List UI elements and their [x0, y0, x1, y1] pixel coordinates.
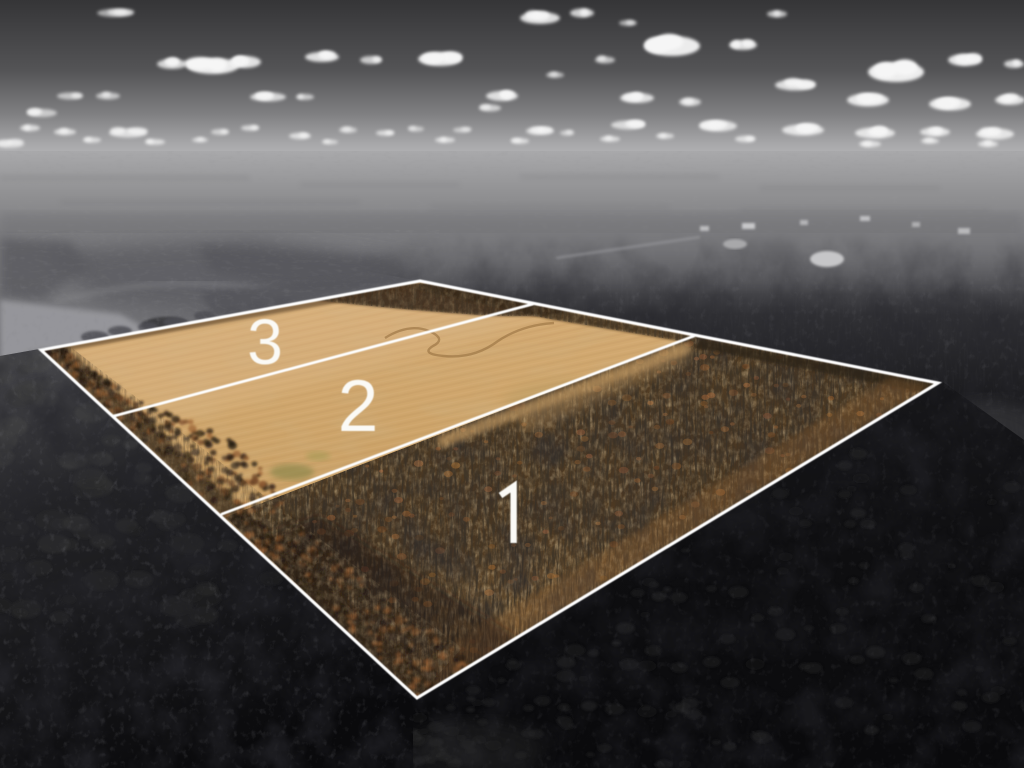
svg-text:2: 2 — [338, 366, 379, 447]
svg-text:3: 3 — [247, 306, 283, 378]
